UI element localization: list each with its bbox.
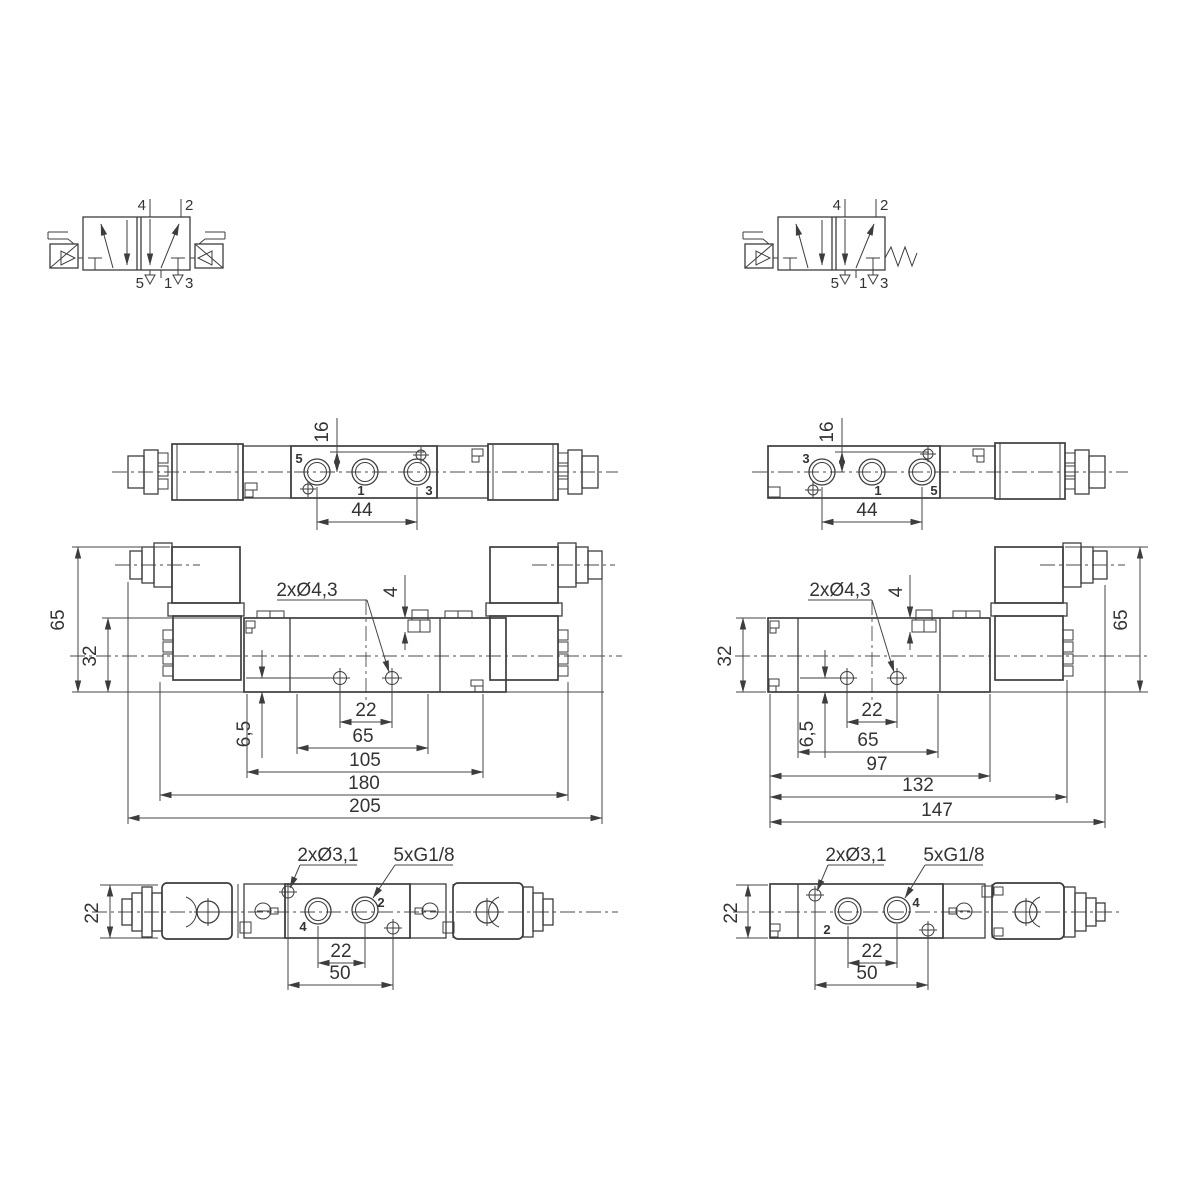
port-1 xyxy=(859,459,885,485)
drill-hole-icon xyxy=(806,886,824,904)
dim-32: 32 xyxy=(715,645,736,666)
port-2 xyxy=(835,898,861,924)
right-valve-front-view: 2xØ4,3 4 32 65 6,5 22 65 97 132 147 xyxy=(715,543,1148,828)
manual-override-icon xyxy=(255,903,278,919)
symbol-port-label: 4 xyxy=(138,197,146,214)
dim-65: 65 xyxy=(857,730,878,751)
dim-205: 205 xyxy=(349,796,381,817)
dim-44: 44 xyxy=(351,500,373,521)
left-valve-bottom-view: 4 2 2xØ3,1 5xG1/8 22 22 50 xyxy=(82,845,618,990)
dim-32: 32 xyxy=(80,645,101,666)
port-label: 1 xyxy=(357,483,364,498)
dim-65-height: 65 xyxy=(1111,609,1132,630)
symbol-port-label: 3 xyxy=(185,275,193,292)
port-3 xyxy=(809,459,835,485)
solenoid-icon xyxy=(48,232,83,268)
dim-22: 22 xyxy=(861,700,882,721)
dim-105: 105 xyxy=(349,750,381,771)
dim-22: 22 xyxy=(861,941,882,962)
manual-override-icon xyxy=(949,903,972,919)
hole-note: 2xØ4,3 xyxy=(276,580,337,601)
dim-4: 4 xyxy=(381,586,402,597)
dim-22-height: 22 xyxy=(82,902,103,923)
right-coil-assembly xyxy=(486,543,602,680)
dim-6-5: 6,5 xyxy=(797,721,818,747)
left-valve-top-view: 5 1 3 16 44 xyxy=(112,418,618,530)
right-valve-bottom-view: 2 4 2xØ3,1 5xG1/8 22 22 50 xyxy=(721,845,1122,990)
symbol-port-label: 1 xyxy=(164,275,172,292)
solenoid-icon xyxy=(190,232,225,268)
port-4 xyxy=(305,898,331,924)
drill-hole-icon xyxy=(279,883,297,901)
dim-147: 147 xyxy=(921,800,953,821)
left-valve-symbol: 4 2 5 1 3 xyxy=(48,197,225,292)
exhaust-triangle xyxy=(840,275,850,284)
dim-16: 16 xyxy=(312,421,333,442)
dim-180: 180 xyxy=(348,773,380,794)
symbol-port-label: 4 xyxy=(833,197,841,214)
dim-50: 50 xyxy=(329,963,350,984)
dim-65: 65 xyxy=(352,726,373,747)
port-label: 3 xyxy=(802,451,809,466)
spring-return-icon xyxy=(885,247,917,266)
port-label: 5 xyxy=(295,451,302,466)
dim-16: 16 xyxy=(817,421,838,442)
port-label: 4 xyxy=(299,919,307,934)
hole-note: 2xØ4,3 xyxy=(809,580,870,601)
dim-97: 97 xyxy=(866,754,887,775)
dim-22-height: 22 xyxy=(721,902,742,923)
dim-50: 50 xyxy=(856,963,877,984)
dim-22: 22 xyxy=(355,700,376,721)
dim-132: 132 xyxy=(902,775,934,796)
coil-assembly xyxy=(991,543,1107,680)
port-label: 2 xyxy=(377,895,384,910)
symbol-port-label: 2 xyxy=(185,197,193,214)
technical-drawing-page: 4 2 5 1 3 4 2 5 1 3 xyxy=(0,0,1200,1200)
target-mark-icon xyxy=(413,447,429,463)
port-4 xyxy=(884,897,910,923)
exhaust-triangle xyxy=(145,275,155,284)
thread-note: 5xG1/8 xyxy=(393,845,454,866)
connector-housing xyxy=(992,883,1064,939)
symbol-port-label: 5 xyxy=(831,275,839,292)
port-label: 5 xyxy=(930,483,937,498)
target-mark-icon xyxy=(300,481,316,497)
left-connector-housing xyxy=(162,883,232,939)
dim-4: 4 xyxy=(886,586,907,597)
thread-note: 5xG1/8 xyxy=(923,845,984,866)
hole-note: 2xØ3,1 xyxy=(825,845,886,866)
dim-6-5: 6,5 xyxy=(234,721,255,747)
right-valve-symbol: 4 2 5 1 3 xyxy=(743,197,917,292)
solenoid-icon xyxy=(743,232,778,268)
symbol-port-label: 1 xyxy=(859,275,867,292)
hole-note: 2xØ3,1 xyxy=(297,845,358,866)
drill-hole-icon xyxy=(919,921,937,939)
right-valve-top-view: 3 1 5 16 44 xyxy=(752,418,1128,530)
dim-65-height: 65 xyxy=(48,609,69,630)
port-label: 4 xyxy=(912,895,920,910)
port-2 xyxy=(352,897,378,923)
port-label: 2 xyxy=(823,922,830,937)
valve-dimensional-drawing: 4 2 5 1 3 4 2 5 1 3 xyxy=(0,0,1200,1200)
left-coil-assembly xyxy=(130,543,244,680)
port-label: 1 xyxy=(874,483,881,498)
dim-44: 44 xyxy=(856,500,878,521)
drill-hole-icon xyxy=(384,919,402,937)
dim-22: 22 xyxy=(330,941,351,962)
port-label: 3 xyxy=(425,483,432,498)
manual-override-icon xyxy=(415,903,438,919)
exhaust-triangle xyxy=(868,275,878,284)
symbol-port-label: 3 xyxy=(880,275,888,292)
symbol-port-label: 5 xyxy=(136,275,144,292)
exhaust-triangle xyxy=(173,275,183,284)
right-connector-housing xyxy=(453,883,523,939)
symbol-port-label: 2 xyxy=(880,197,888,214)
left-valve-front-view: 2xØ4,3 4 65 32 6,5 22 65 105 180 205 xyxy=(48,543,622,824)
